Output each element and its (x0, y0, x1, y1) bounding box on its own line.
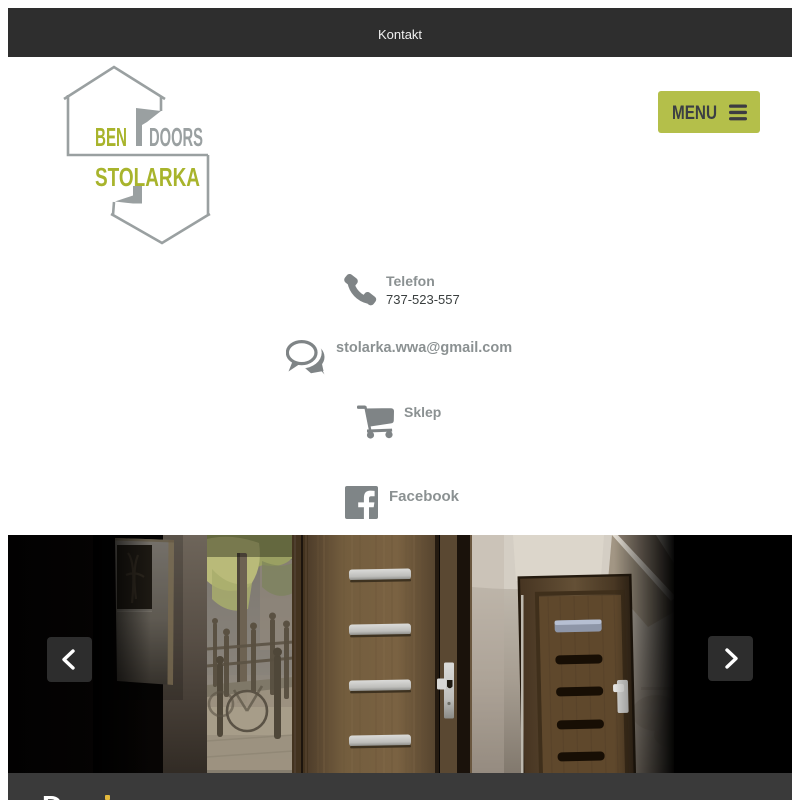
svg-text:STOLARKA: STOLARKA (95, 162, 200, 192)
svg-text:BEN: BEN (95, 122, 127, 152)
svg-text:DOORS: DOORS (149, 122, 203, 152)
svg-text:MENU: MENU (672, 102, 717, 124)
